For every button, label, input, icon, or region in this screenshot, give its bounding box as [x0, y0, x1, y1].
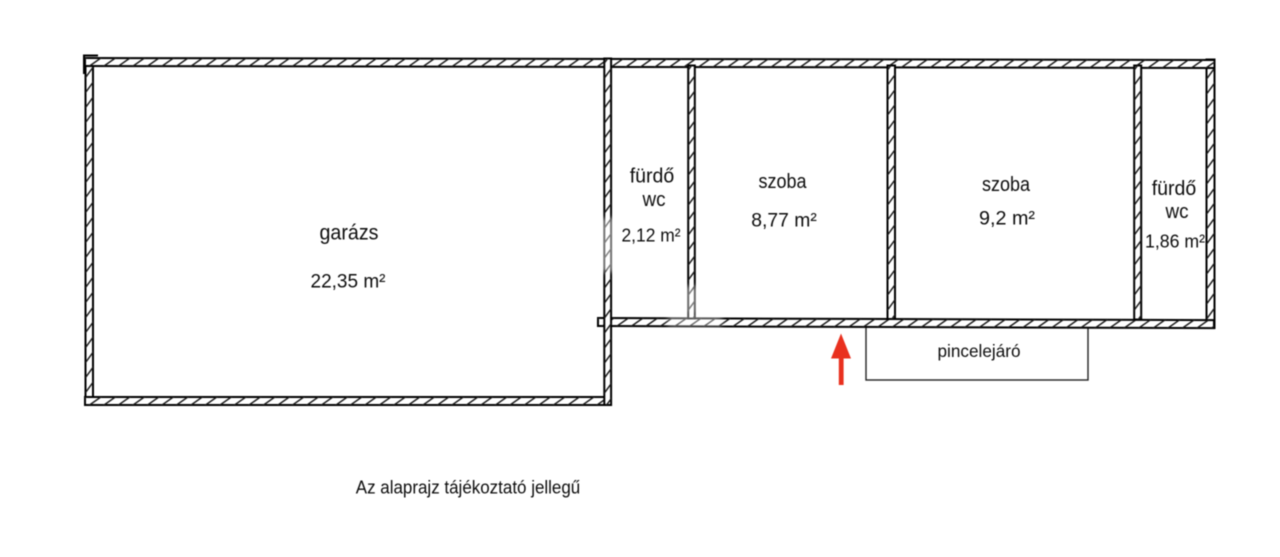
- svg-text:szoba: szoba: [982, 174, 1031, 196]
- svg-text:wc: wc: [1165, 201, 1189, 223]
- svg-text:garázs: garázs: [320, 221, 379, 245]
- svg-text:pincelejáró: pincelejáró: [938, 341, 1021, 361]
- svg-text:9,2 m²: 9,2 m²: [979, 208, 1036, 230]
- svg-text:22,35 m²: 22,35 m²: [311, 271, 386, 293]
- svg-text:fürdő: fürdő: [630, 166, 675, 188]
- svg-text:1,86 m²: 1,86 m²: [1145, 231, 1205, 252]
- svg-text:szoba: szoba: [759, 171, 808, 193]
- svg-text:fürdő: fürdő: [1152, 178, 1197, 200]
- svg-text:2,12 m²: 2,12 m²: [622, 225, 681, 246]
- svg-text:8,77 m²: 8,77 m²: [751, 210, 817, 232]
- svg-text:wc: wc: [642, 189, 666, 211]
- svg-text:Az alaprajz tájékoztató jelleg: Az alaprajz tájékoztató jellegű: [356, 478, 581, 498]
